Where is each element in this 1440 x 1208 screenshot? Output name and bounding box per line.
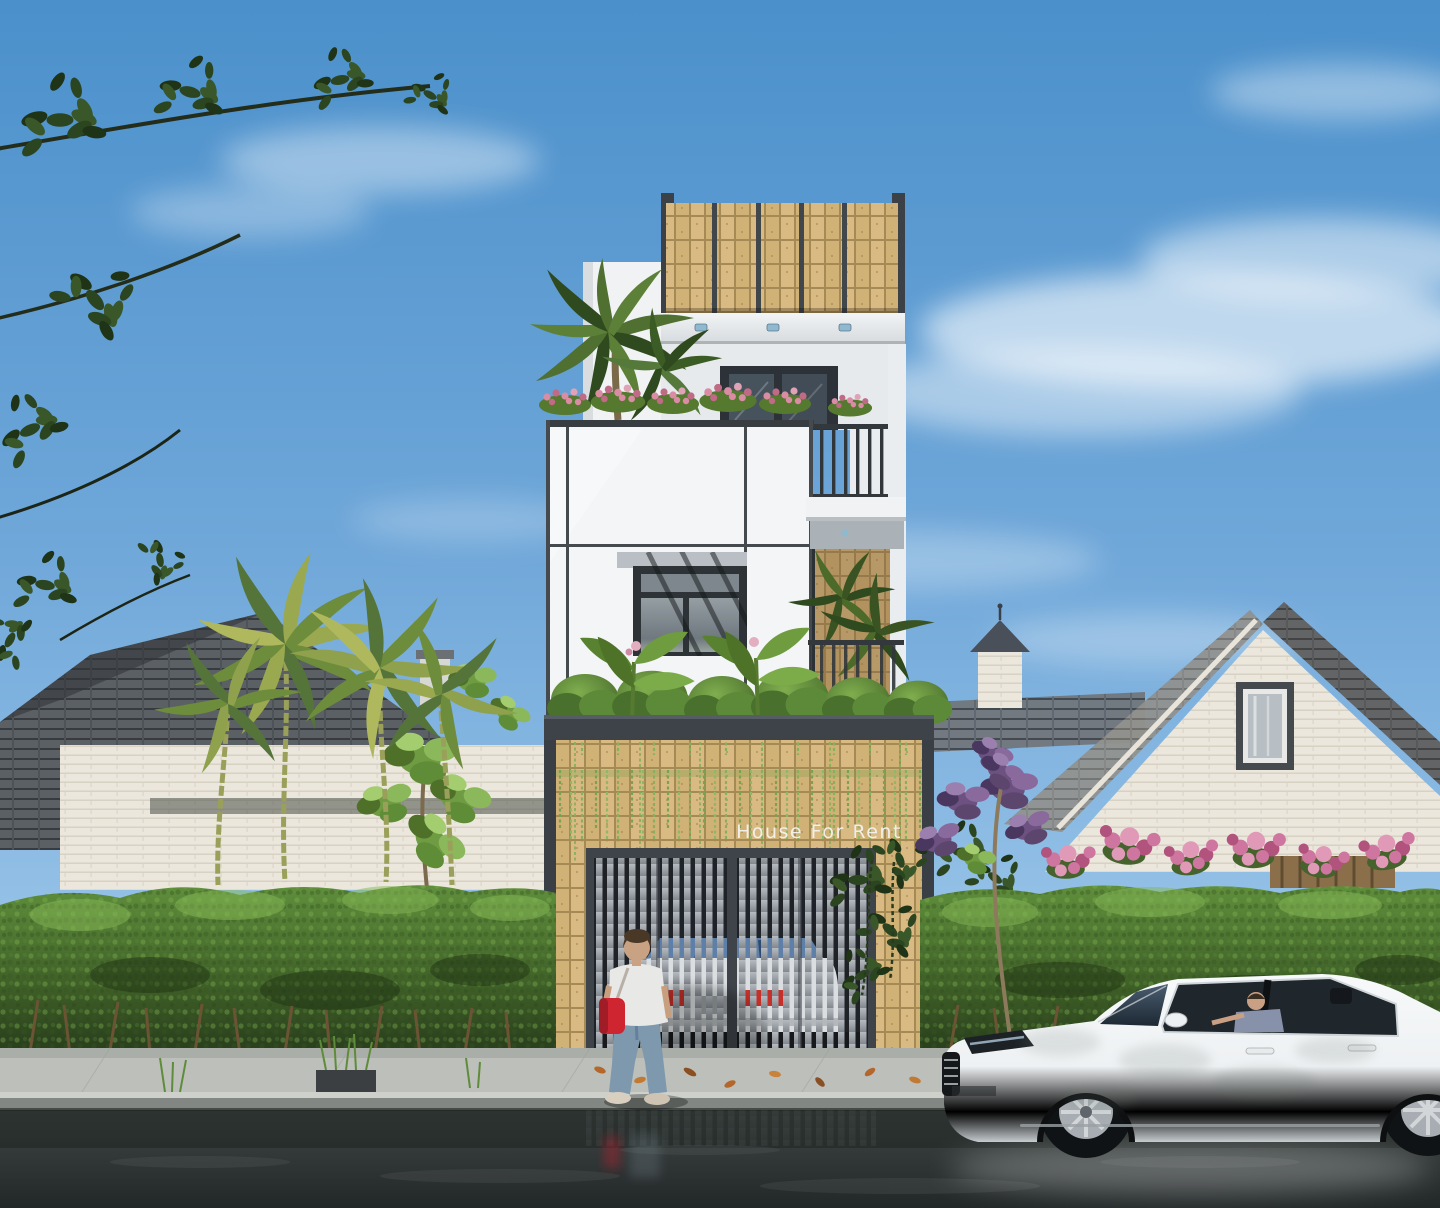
pedestrian-shoe-left bbox=[605, 1092, 631, 1104]
left-house-wall bbox=[60, 745, 560, 890]
hedge-left bbox=[0, 885, 556, 1065]
bag-reflection bbox=[604, 1136, 620, 1168]
car-sill-line bbox=[1020, 1124, 1380, 1127]
attic-window bbox=[1236, 682, 1294, 770]
pedestrian-shoe-right bbox=[644, 1093, 670, 1105]
gate-reflection bbox=[586, 1110, 876, 1146]
planter-cap bbox=[544, 718, 934, 740]
render-canvas: House For Rent bbox=[0, 0, 1440, 1208]
car-reflection bbox=[950, 1142, 1430, 1194]
architectural-render: House For Rent bbox=[0, 0, 1440, 1208]
car-side-mirror bbox=[1165, 1013, 1187, 1027]
pedestrian-bag bbox=[599, 998, 625, 1034]
main-house: House For Rent bbox=[527, 193, 952, 1075]
under-balcony-light bbox=[842, 530, 849, 537]
house-for-rent-sign: House For Rent bbox=[736, 821, 902, 843]
balcony-slab bbox=[806, 497, 906, 549]
brick-screen bbox=[666, 203, 898, 313]
pedestrian-reflection bbox=[630, 1134, 660, 1178]
